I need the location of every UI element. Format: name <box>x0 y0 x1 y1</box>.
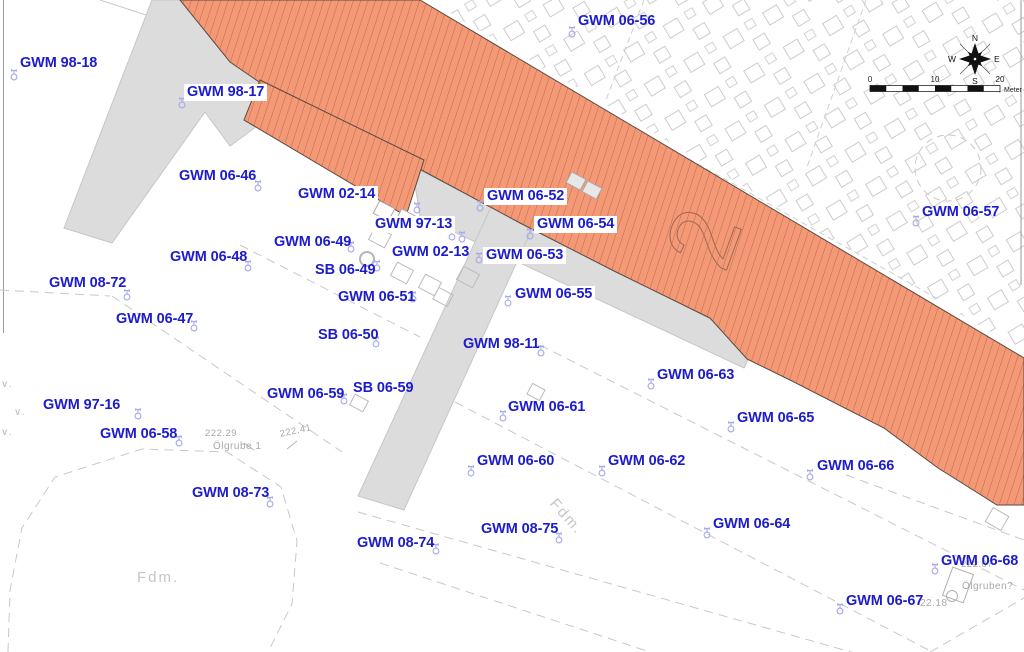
compass-north-label: N <box>972 33 978 43</box>
scale-unit-label: Meter <box>1004 87 1023 94</box>
scale-tick-0: 0 <box>868 75 873 84</box>
compass-west-label: W <box>948 54 956 64</box>
compass-east-label: E <box>994 54 1000 64</box>
site-plan-map: 2 <box>0 0 1024 652</box>
scale-tick-20: 20 <box>996 75 1005 84</box>
scale-tick-10: 10 <box>931 75 940 84</box>
site-plan: 2 <box>0 0 1024 652</box>
compass-south-label: S <box>972 76 978 86</box>
